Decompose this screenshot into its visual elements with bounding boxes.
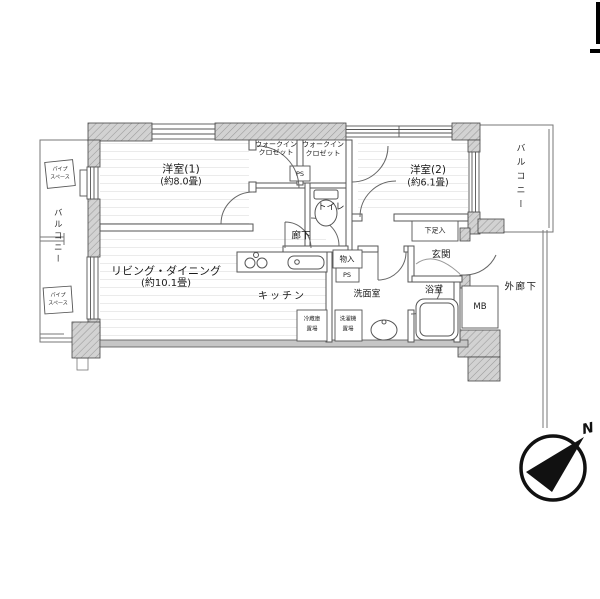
bedroom1-label: 洋室(1) — [162, 164, 200, 175]
stove-burner-3 — [254, 253, 259, 258]
window-left-upper — [87, 167, 98, 199]
wall-top-mid — [215, 123, 346, 140]
bathtub — [416, 299, 458, 340]
wic1-label-line1: ウォークイン — [255, 142, 297, 149]
wall-bottom-right-b — [468, 357, 500, 381]
window-left-shutter-box — [80, 170, 87, 196]
sink-faucet — [295, 260, 300, 265]
wic2-label-line2: クロゼット — [306, 151, 341, 158]
balcony-left-end — [40, 334, 72, 338]
wic2-label-line1: ウォークイン — [302, 142, 344, 149]
washroom-label: 洗面室 — [353, 291, 380, 300]
washer-space-label-line2: 置場 — [342, 327, 353, 333]
meter-box-label: MB — [473, 303, 486, 312]
outer-corridor-label: 外廊下 — [504, 282, 537, 292]
wall-bath-top — [412, 276, 462, 282]
toilet-tank — [314, 190, 338, 199]
balcony-pipe-2-label-line2: スペース — [48, 302, 67, 307]
wall-stub — [77, 358, 88, 370]
bedroom2-size-label: (約6.1畳) — [407, 178, 449, 188]
wall-bedroom1-wic-b — [249, 182, 256, 192]
floorplan: 洋室(1) (約8.0畳) ウォークイン クロゼット ウォークイン クロゼット … — [0, 0, 600, 599]
edge-marks — [590, 2, 600, 53]
entrance-step-curve — [416, 259, 460, 274]
bedroom1-size-label: (約8.0畳) — [160, 177, 202, 187]
balcony-pipe-2-label-line1: パイプ — [50, 294, 65, 299]
outer-corridor-boundary — [543, 230, 547, 428]
pipe-space-2-label: PS — [343, 272, 351, 279]
window-bedroom1-top — [152, 124, 215, 139]
balcony-pipe-1-label-line2: スペース — [50, 176, 69, 181]
door-washroom — [378, 252, 406, 280]
hallway-label: 廊下 — [291, 231, 310, 241]
wall-top-left — [88, 123, 152, 141]
wall-toilet-left — [305, 183, 310, 252]
washbasin-faucet — [382, 320, 386, 324]
wall-wic2-bedroom2 — [346, 140, 352, 252]
window-bedroom2-right — [469, 152, 479, 212]
balcony-right-label: バルコニー — [515, 143, 524, 213]
living-dining-label: リビング・ダイニング — [111, 266, 221, 277]
bathroom-label: 浴室 — [425, 287, 443, 296]
washer-space-label-line1: 洗濯機 — [340, 317, 357, 323]
stove-burner-1 — [245, 258, 255, 268]
fridge-space-label-line1: 冷蔵庫 — [304, 317, 321, 323]
toilet-label: トイレ — [317, 204, 344, 213]
kitchen-sink — [288, 256, 324, 269]
wall-left-a — [88, 140, 100, 167]
bedroom2-label: 洋室(2) — [410, 165, 446, 176]
wall-entrance-a — [460, 228, 470, 241]
wall-washroom-bath-b — [408, 310, 414, 342]
wall-bedroom2-bottom-b — [394, 214, 468, 221]
pipe-space-1-label: PS — [296, 171, 304, 178]
wic1-label-line2: クロゼット — [259, 150, 294, 157]
window-left-lower — [87, 257, 98, 319]
wall-bedroom1-living — [100, 224, 253, 231]
wall-pillar-bottom-left — [72, 322, 100, 358]
balcony-pipe-1-label-line1: パイプ — [52, 168, 67, 173]
wall-left-b — [88, 199, 100, 257]
edge-bar — [596, 2, 600, 44]
compass-needle — [526, 437, 584, 492]
entrance-label: 玄関 — [431, 250, 450, 260]
balcony-left-label: バルコニー — [53, 208, 62, 266]
door-front — [465, 255, 496, 275]
wall-top-right — [452, 123, 480, 140]
living-dining-size-label: (約10.1畳) — [141, 279, 191, 289]
shoe-cabinet-label: 下足入 — [425, 228, 446, 235]
storage-label: 物入 — [340, 255, 355, 263]
edge-tick — [590, 49, 600, 53]
fridge-space-label-line2: 置場 — [306, 327, 317, 333]
stove-burner-2 — [257, 258, 267, 268]
wall-right-a — [468, 140, 480, 152]
wall-balcony-right-end — [478, 219, 504, 233]
compass-icon — [521, 436, 585, 500]
kitchen-label: キッチン — [258, 292, 306, 302]
